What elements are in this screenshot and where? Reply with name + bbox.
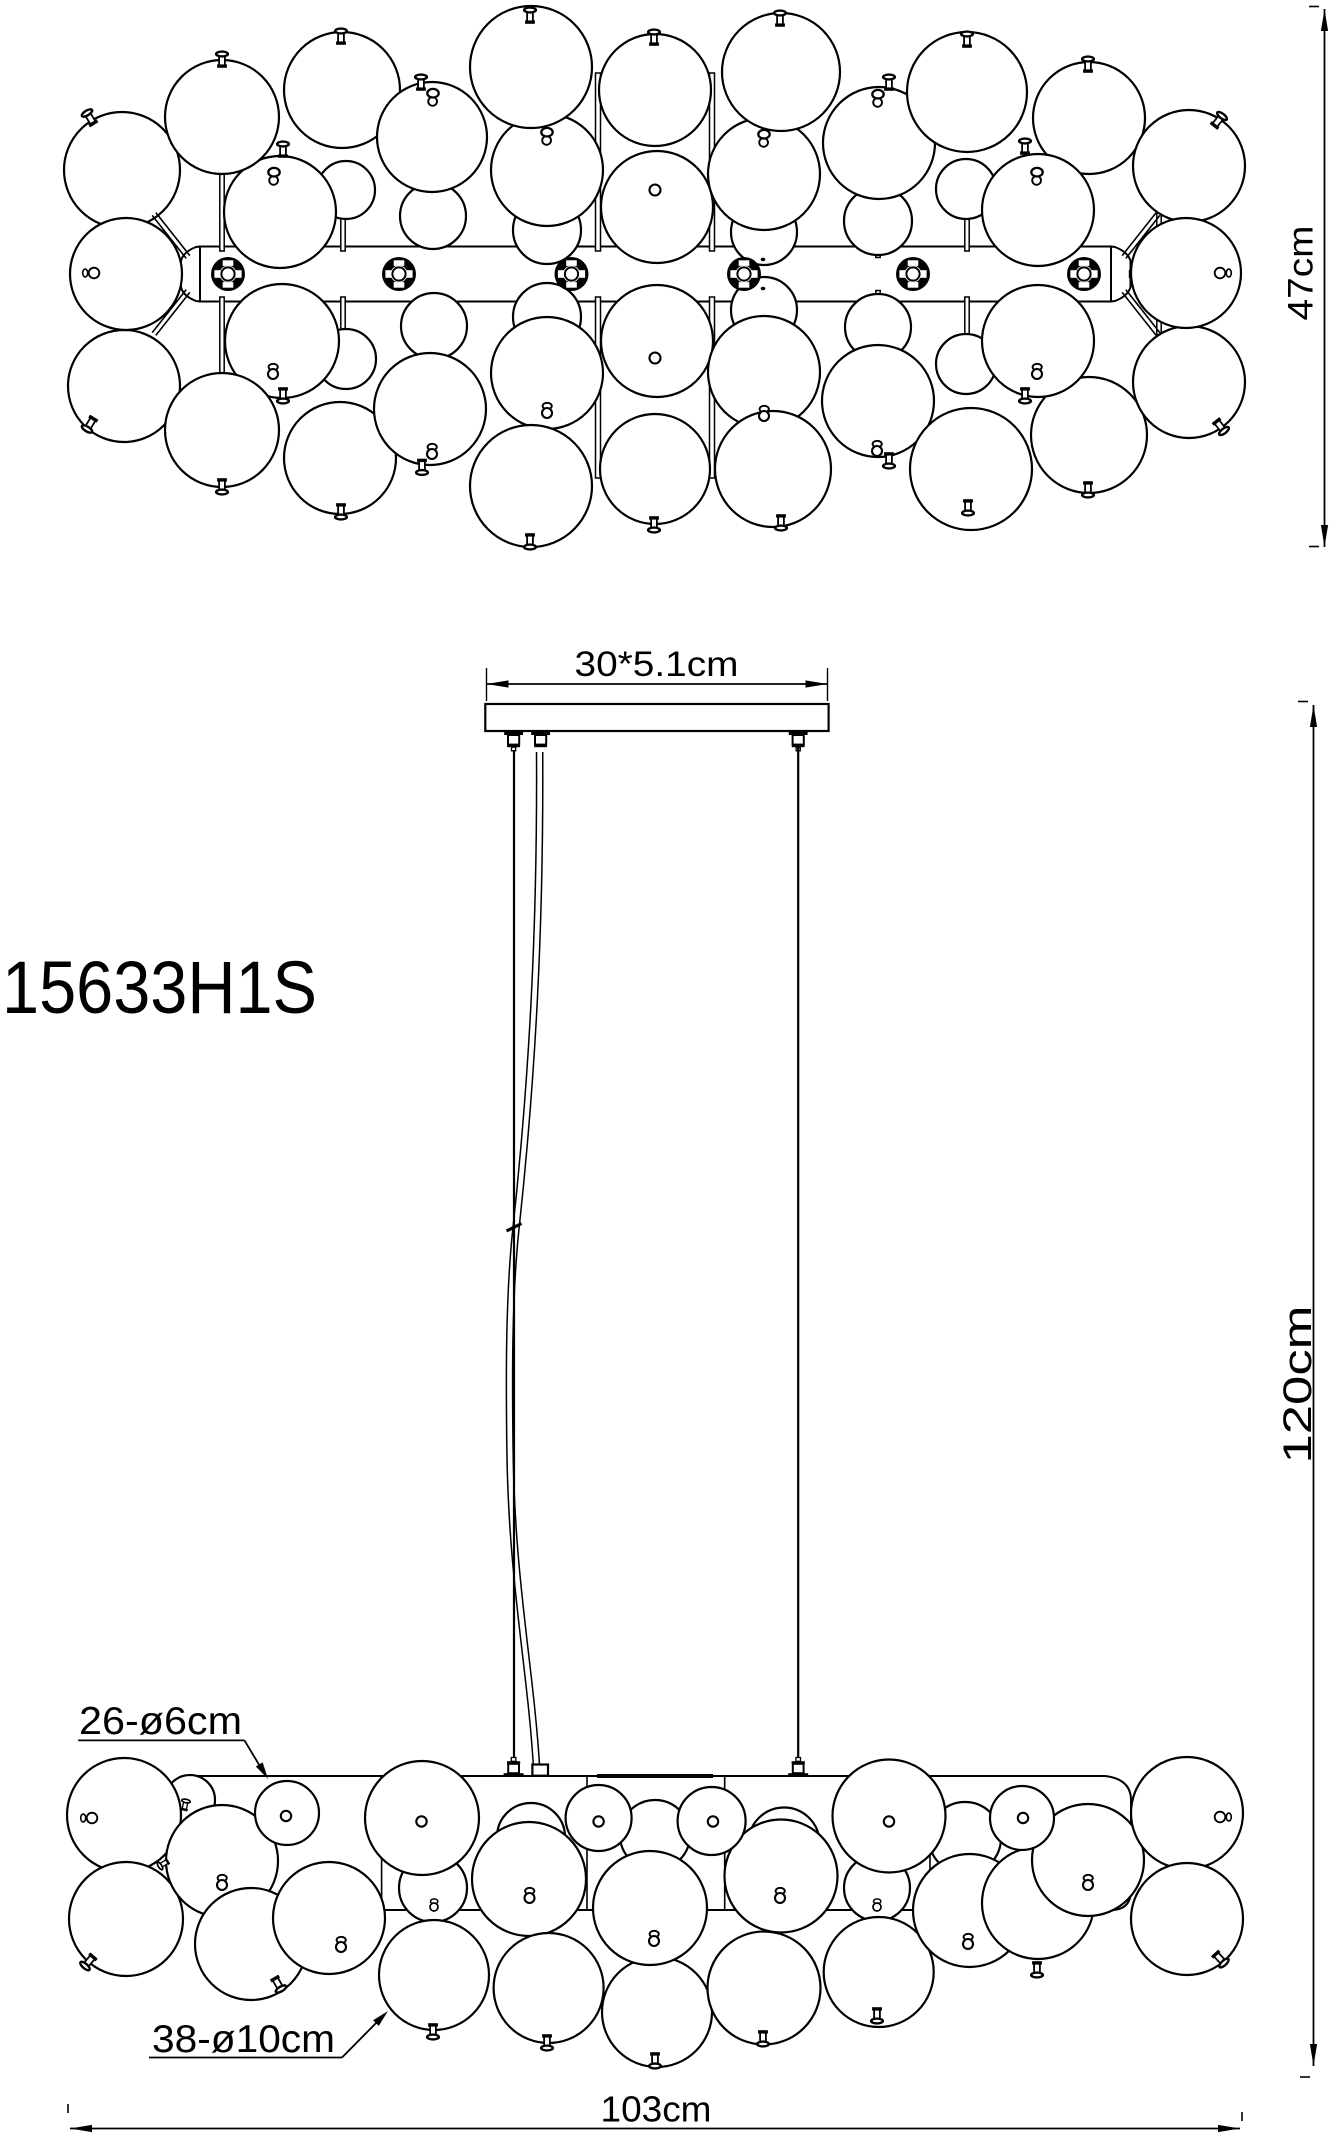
- svg-text:103cm: 103cm: [601, 2088, 712, 2129]
- svg-text:38-ø10cm: 38-ø10cm: [152, 2018, 335, 2061]
- svg-text:47cm: 47cm: [1282, 226, 1321, 321]
- svg-text:120cm: 120cm: [1276, 1306, 1320, 1464]
- svg-text:30*5.1cm: 30*5.1cm: [575, 645, 739, 684]
- svg-text:15633H1S: 15633H1S: [2, 946, 317, 1029]
- svg-text:26-ø6cm: 26-ø6cm: [79, 1700, 242, 1743]
